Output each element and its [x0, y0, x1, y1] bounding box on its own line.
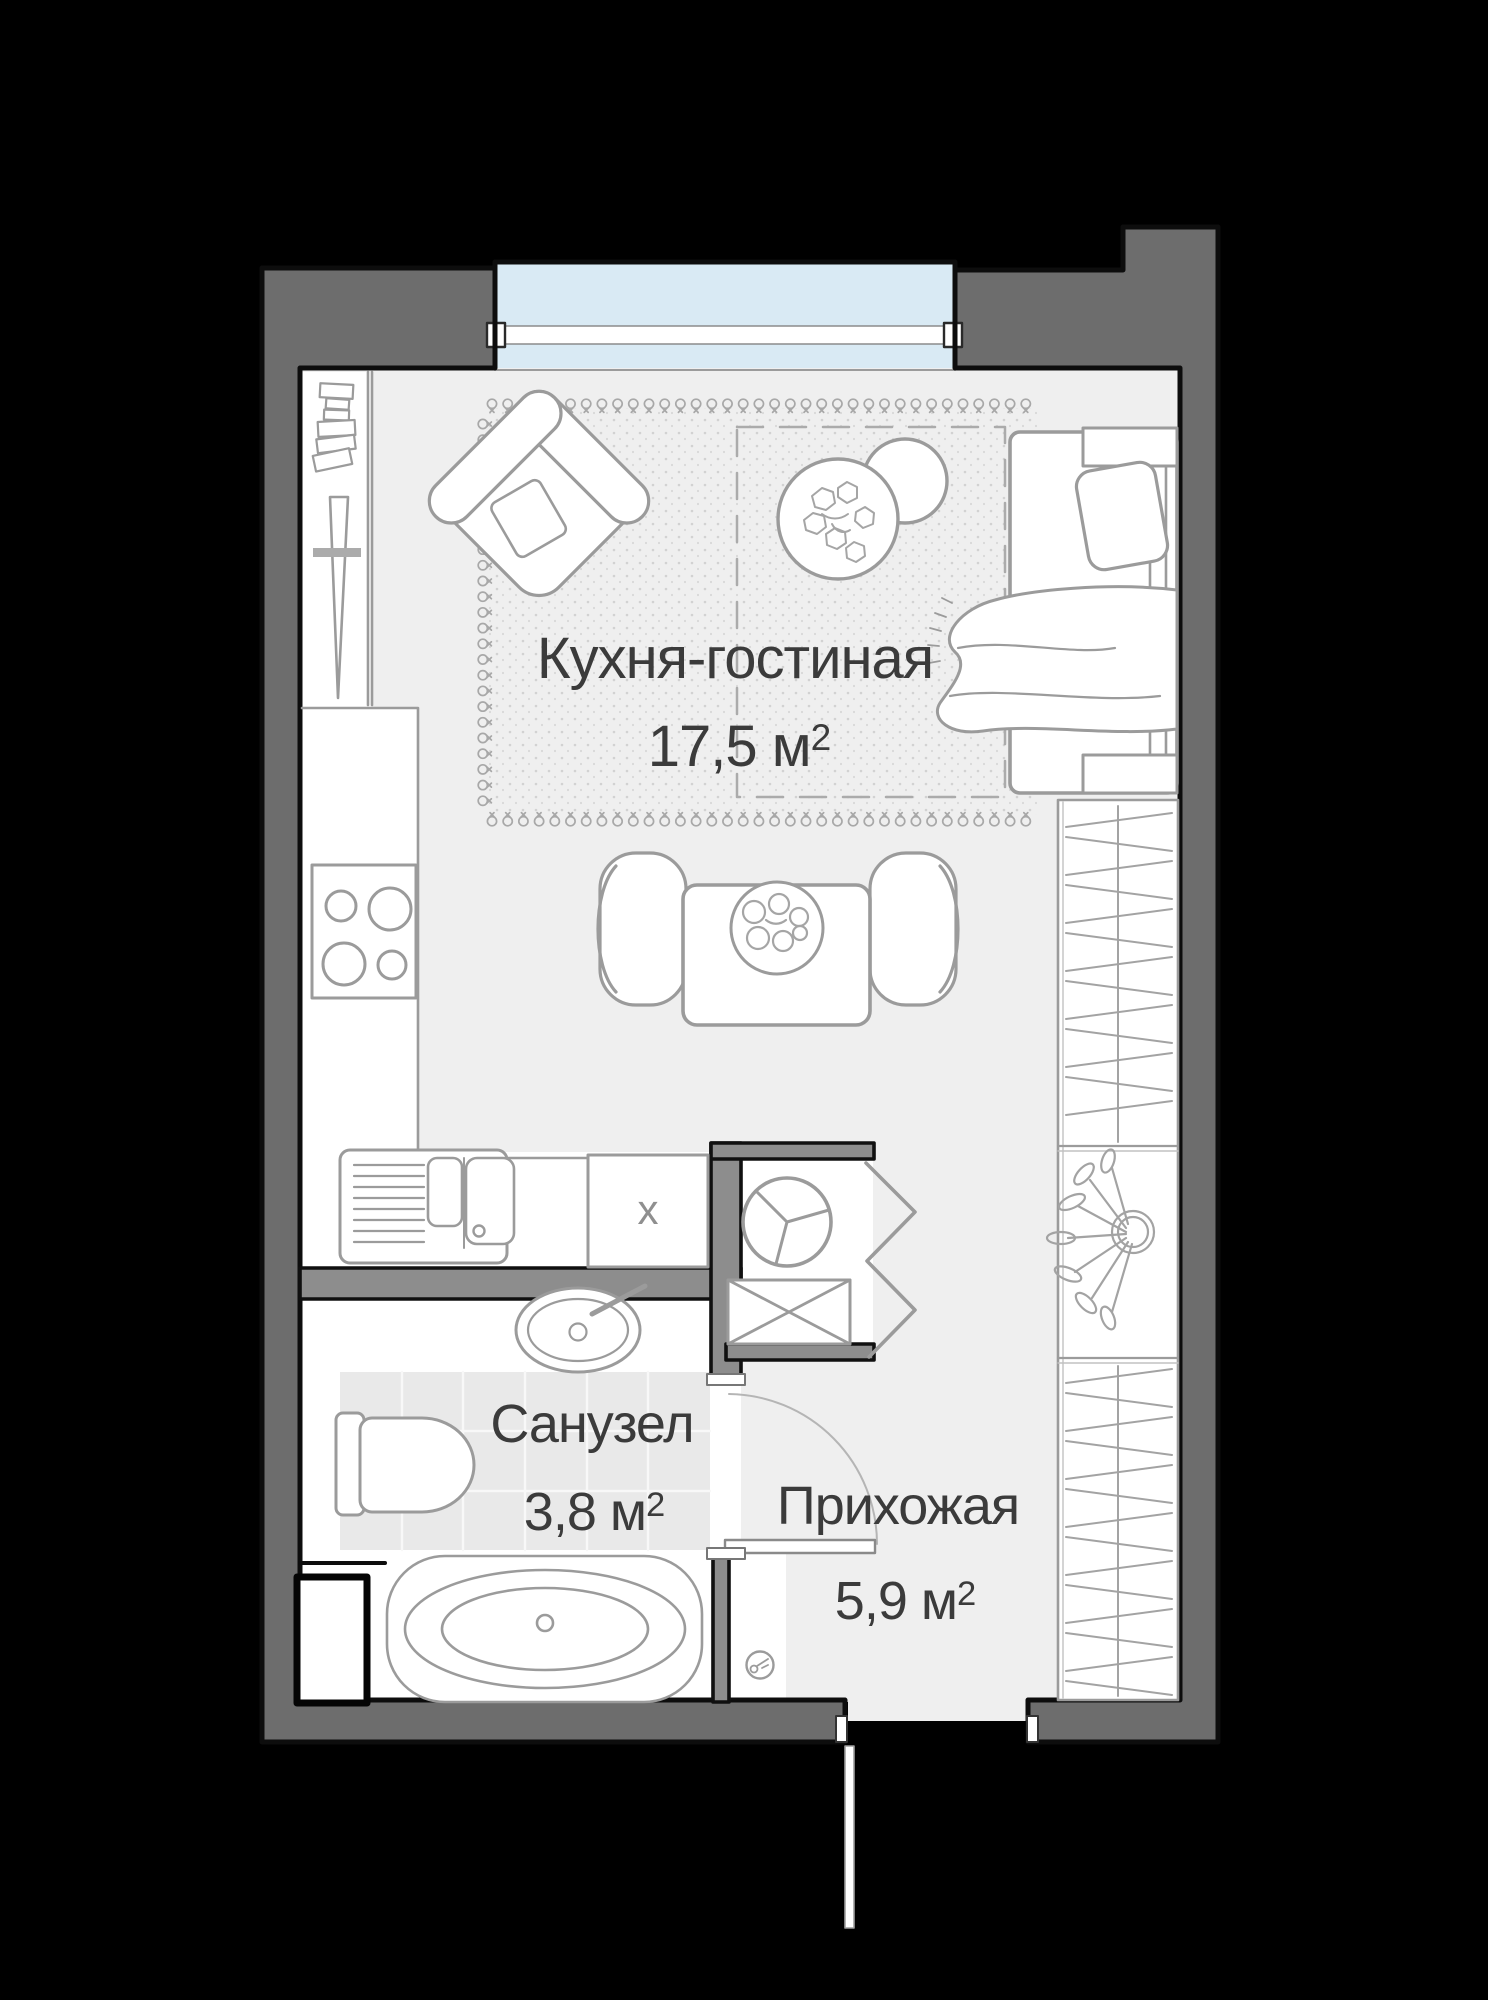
side-table-flowers [778, 459, 898, 579]
area-sup: 2 [811, 716, 831, 758]
window [487, 262, 962, 370]
area-label-bathroom: 3,8 м2 [524, 1485, 664, 1539]
room-label-kitchen-living: Кухня-гостиная [537, 630, 933, 688]
closet-bottom-wall [726, 1344, 874, 1360]
area-value: 17,5 м [648, 714, 811, 779]
closet-top-wall [711, 1143, 874, 1159]
area-value: 5,9 м [835, 1571, 957, 1631]
bathtub [387, 1556, 702, 1702]
floor-outlet-icon [747, 1652, 774, 1679]
area-value: 3,8 м [524, 1482, 646, 1542]
dining-chair-left [598, 853, 686, 1005]
appliance-x-marker: x [638, 1189, 659, 1231]
area-sup: 2 [646, 1486, 664, 1524]
bed-shelf-top [1083, 428, 1177, 466]
room-label-hallway: Прихожая [777, 1479, 1019, 1533]
area-label-hallway: 5,9 м2 [835, 1574, 975, 1628]
tv-bracket [313, 548, 361, 557]
bed-pillow [1074, 460, 1170, 572]
dining-chair-right [870, 853, 958, 1005]
entrance-door-leaf [845, 1746, 854, 1928]
wall-below-door [713, 1552, 729, 1702]
food-plate [731, 882, 823, 974]
room-label-bathroom: Санузел [490, 1397, 693, 1451]
bathroom-top-wall [300, 1268, 741, 1299]
washing-machine [743, 1178, 831, 1266]
stove [312, 865, 416, 998]
entrance-door [836, 1716, 1038, 1928]
kitchen-sink [340, 1150, 514, 1263]
wall-shelf [313, 383, 356, 471]
floor-plan-canvas [0, 0, 1488, 2000]
sink-basin-small [428, 1158, 462, 1226]
shaft-niche [297, 1577, 367, 1703]
area-sup: 2 [957, 1575, 975, 1613]
duct-box [728, 1280, 850, 1344]
bathroom-door-leaf [725, 1540, 875, 1553]
bed-blanket [937, 587, 1177, 732]
area-label-kitchen-living: 17,5 м2 [648, 718, 831, 776]
wardrobe [1047, 800, 1178, 1700]
bed-shelf-bottom [1083, 755, 1177, 793]
dining-table [683, 882, 870, 1025]
floor-plan-page: Кухня-гостиная 17,5 м2 Санузел 3,8 м2 Пр… [0, 0, 1488, 2000]
toilet [336, 1413, 474, 1515]
